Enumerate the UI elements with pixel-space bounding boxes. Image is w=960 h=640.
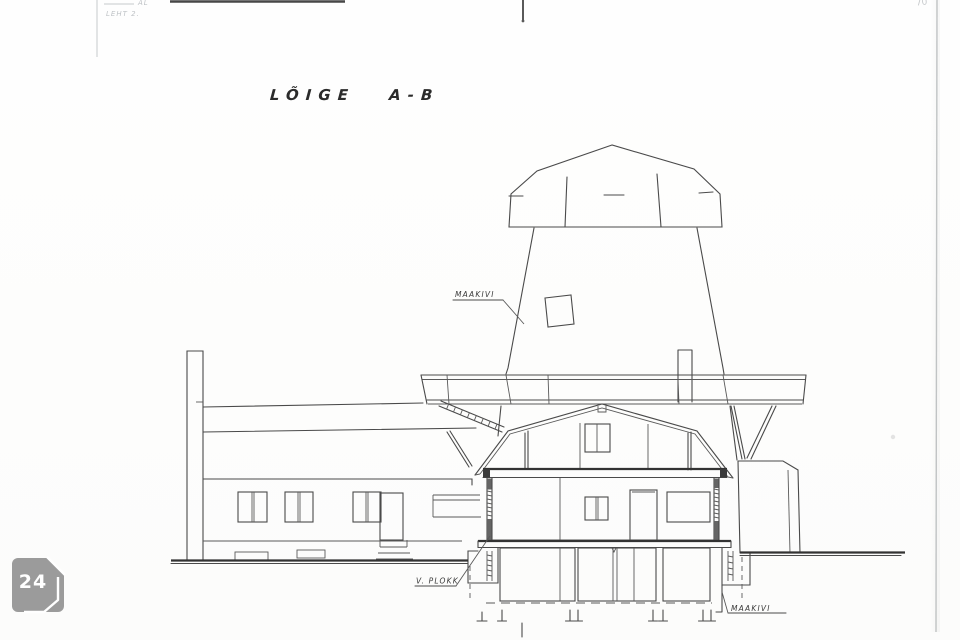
basement-wall-label: V. PLOKK bbox=[416, 577, 459, 586]
windmill-cap bbox=[509, 145, 722, 227]
annex-door bbox=[380, 493, 403, 540]
tower-chimney bbox=[678, 350, 692, 402]
platform-braces bbox=[447, 406, 776, 467]
foundation-material-label: MAAKIVI bbox=[731, 604, 771, 613]
platform-ladder bbox=[439, 401, 504, 432]
windmill-tower bbox=[498, 228, 737, 460]
floor-slab bbox=[478, 541, 731, 548]
mill-roof bbox=[475, 404, 733, 478]
foundation-footings bbox=[470, 557, 742, 637]
tower-window bbox=[545, 295, 574, 327]
annex-chimney bbox=[187, 351, 203, 560]
gallery-platform bbox=[421, 375, 806, 404]
tower-material-label: MAAKIVI bbox=[455, 290, 495, 299]
annex-door-steps bbox=[376, 540, 413, 559]
foundation-material-leader bbox=[722, 592, 728, 613]
attic-window bbox=[585, 424, 610, 452]
mill-right-wall bbox=[714, 478, 719, 541]
annex-windows bbox=[238, 492, 381, 522]
mill-window-large bbox=[667, 492, 710, 522]
mill-section bbox=[475, 404, 733, 541]
mill-door bbox=[630, 490, 657, 540]
mill-window-small bbox=[585, 497, 608, 520]
link-structure bbox=[433, 495, 481, 517]
tower-base-block bbox=[738, 461, 800, 553]
ground-line bbox=[171, 553, 905, 564]
annex-building bbox=[187, 351, 481, 560]
photo-count: 24 bbox=[8, 571, 58, 593]
mill-left-wall bbox=[487, 478, 492, 541]
basement-piers bbox=[468, 548, 750, 601]
photo-count-badge[interactable]: 24 bbox=[8, 555, 68, 617]
architectural-section-drawing: MAAKIVI V. PLOKK MAAKIVI bbox=[0, 0, 960, 640]
foundation-left bbox=[468, 548, 498, 583]
scanned-drawing-page: AL LEHT 2. 70 LÕIGE A-B bbox=[0, 0, 960, 640]
tower-material-leader bbox=[503, 300, 524, 324]
